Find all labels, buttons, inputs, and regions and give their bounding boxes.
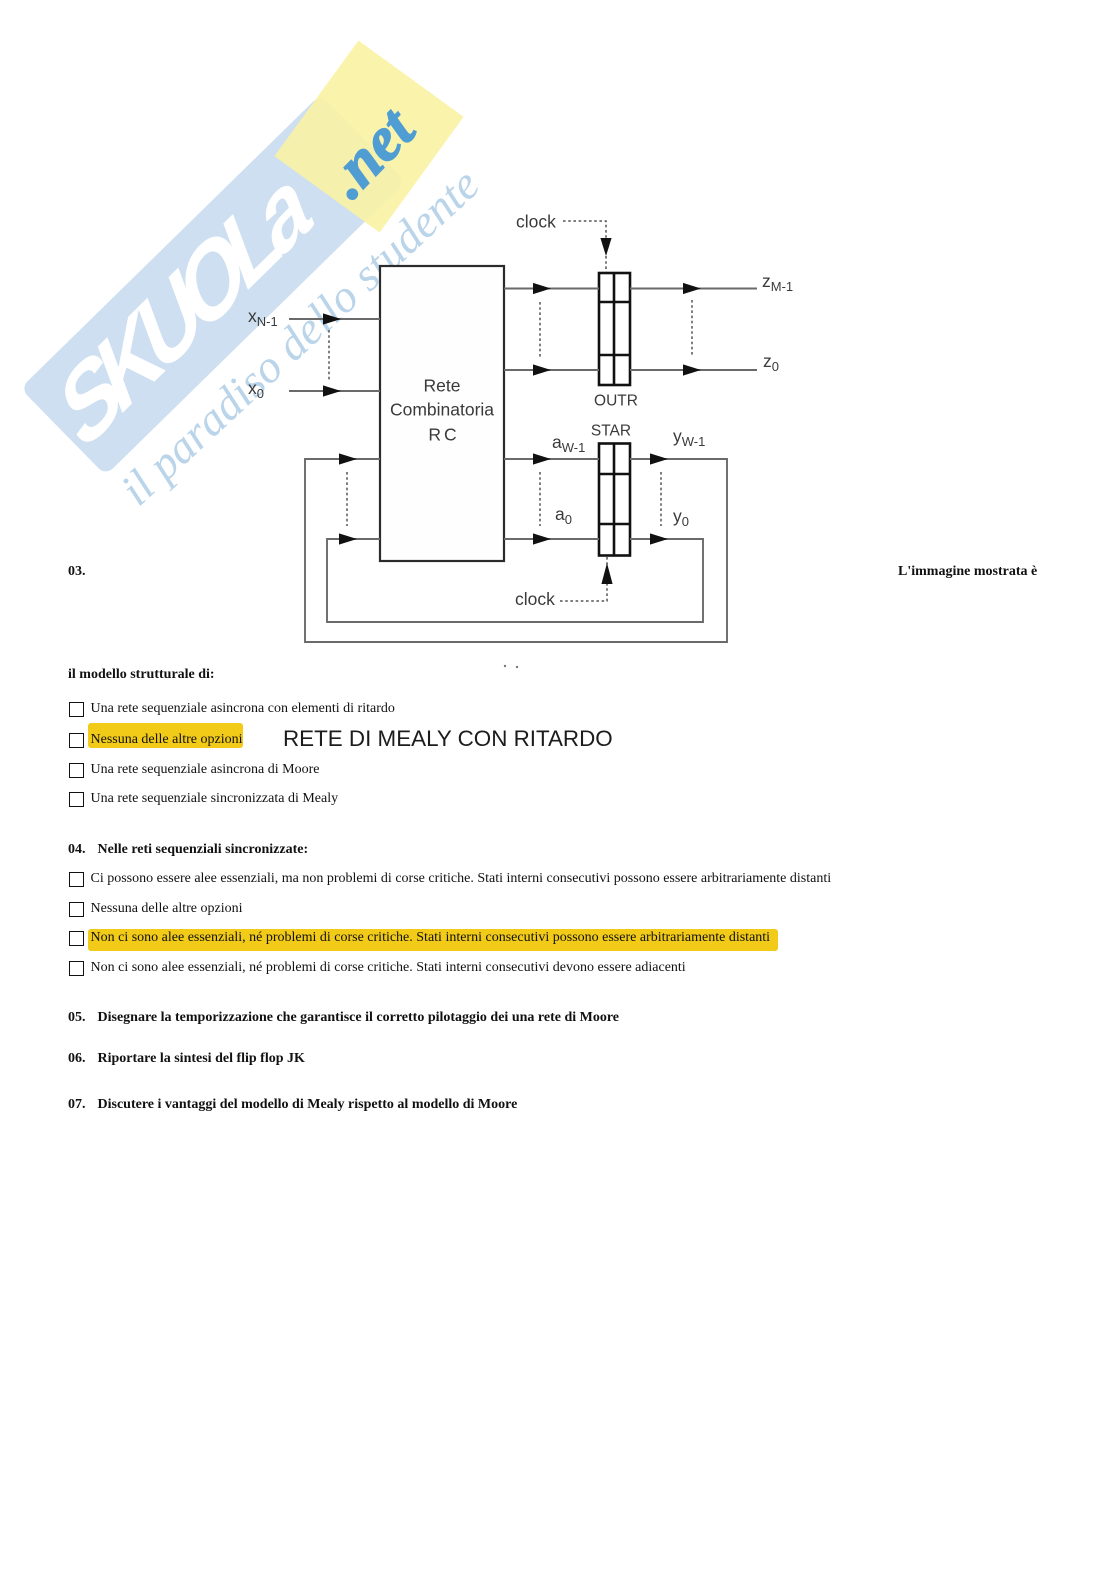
svg-text:Combinatoria: Combinatoria — [390, 400, 494, 420]
svg-text:Rete: Rete — [424, 376, 461, 396]
svg-text:x0: x0 — [248, 378, 264, 401]
svg-text:yW-1: yW-1 — [673, 426, 705, 449]
svg-text:clock: clock — [516, 212, 556, 232]
svg-text:zM-1: zM-1 — [762, 271, 793, 294]
svg-text:OUTR: OUTR — [594, 393, 638, 410]
svg-text:RC: RC — [428, 425, 459, 445]
svg-text:aW-1: aW-1 — [552, 432, 585, 455]
svg-text:clock: clock — [515, 589, 555, 609]
svg-text:a0: a0 — [555, 504, 572, 527]
svg-text:z0: z0 — [763, 351, 779, 374]
svg-text:STAR: STAR — [591, 423, 631, 440]
svg-text:y0: y0 — [673, 506, 689, 529]
svg-text:xN-1: xN-1 — [248, 306, 278, 329]
